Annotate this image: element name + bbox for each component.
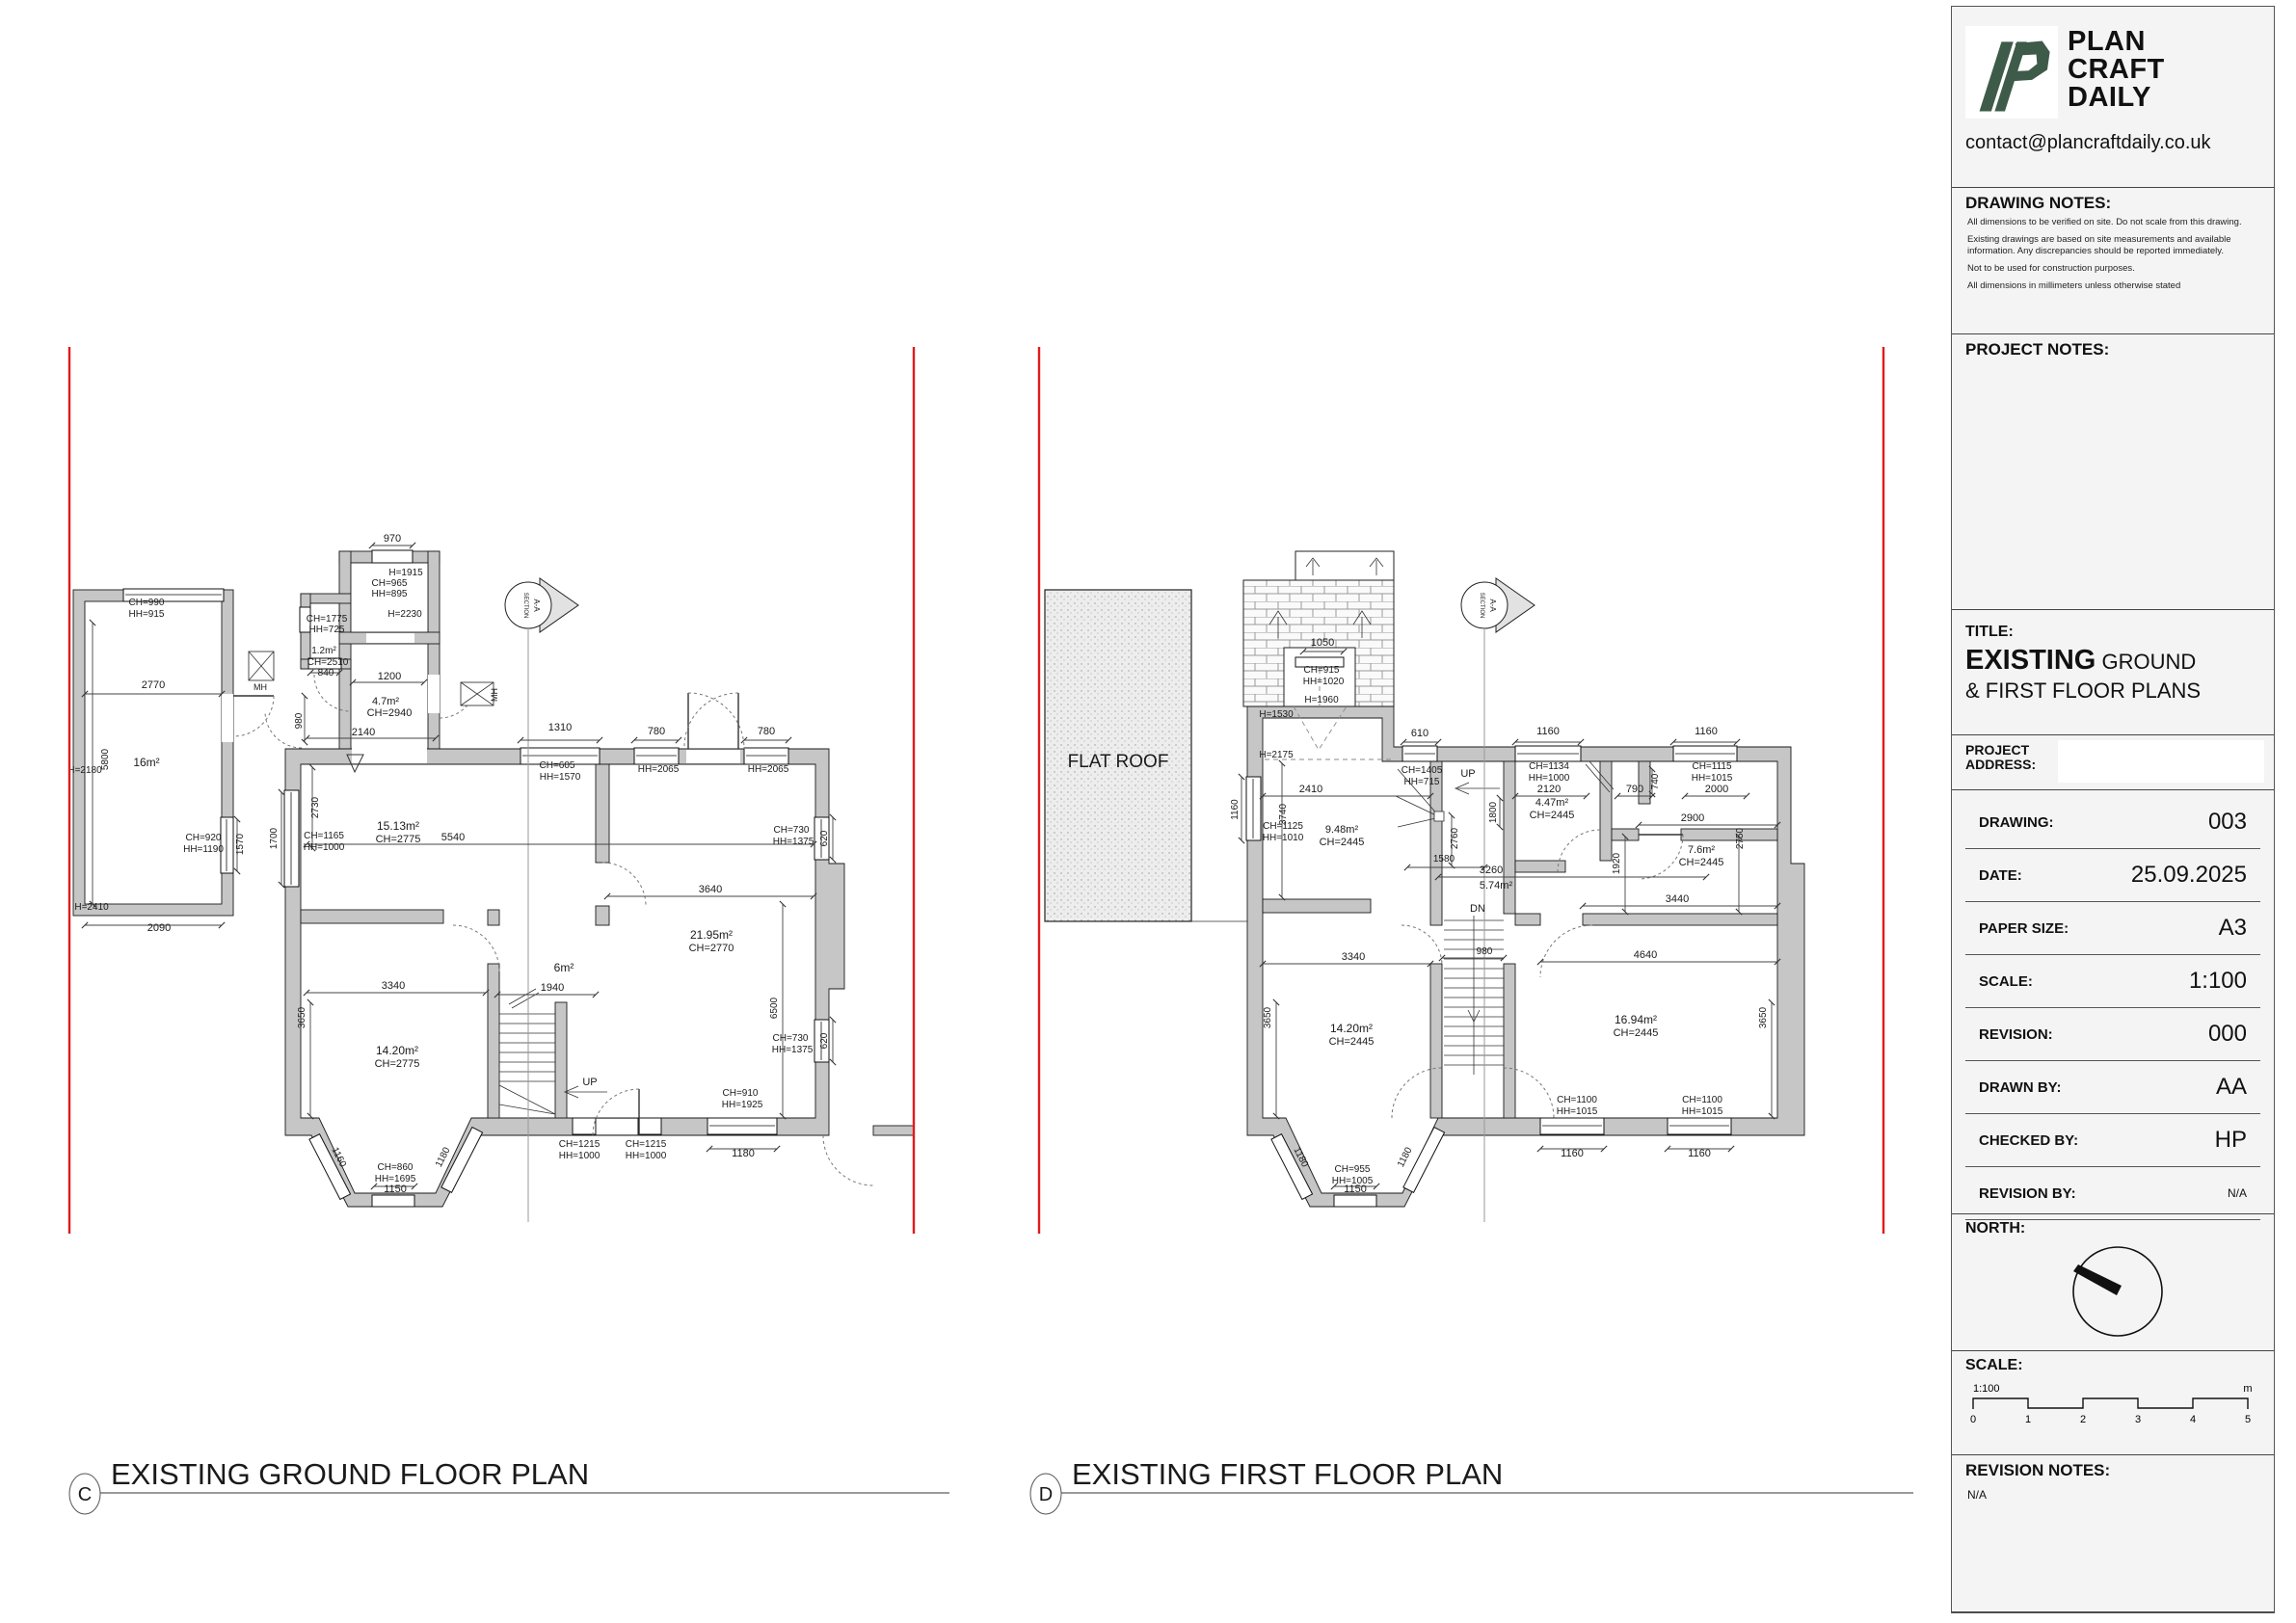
plan-annotation: CH=965 (372, 578, 408, 589)
scale-tick: 0 (1970, 1414, 1976, 1425)
plan-annotation: 2090 (147, 922, 171, 934)
plan-annotation: 1160 (1561, 1148, 1584, 1159)
plan-annotation: CH=730 (773, 1033, 809, 1044)
plan-annotation: 21.95m² (690, 928, 733, 942)
plan-annotation: CH=2775 (376, 834, 421, 845)
plan-annotation: HH=1190 (183, 844, 224, 855)
info-row-label: DATE: (1979, 867, 2022, 884)
plan-annotation: CH=2445 (1614, 1027, 1659, 1039)
plan-annotation: 970 (384, 533, 401, 545)
plan-annotation: CH=860 (378, 1162, 414, 1173)
drawing-note: Existing drawings are based on site meas… (1967, 234, 2260, 257)
plan-annotation: 3340 (1342, 951, 1365, 963)
plan-annotation: 2750 (1735, 827, 1746, 849)
project-address-redacted (2058, 740, 2264, 783)
plan-annotation: 3650 (1263, 1006, 1273, 1028)
info-row-label: CHECKED BY: (1979, 1132, 2078, 1149)
parapet-box (1295, 551, 1394, 580)
title-block-header: PLAN CRAFT DAILY contact@plancraftdaily.… (1952, 7, 2274, 188)
info-row-label: DRAWN BY: (1979, 1079, 2062, 1096)
info-row: DRAWING:003 (1965, 796, 2260, 849)
north-arrow-icon (1952, 1232, 2276, 1345)
drawing-notes-list: All dimensions to be verified on site. D… (1965, 217, 2260, 291)
plan-annotation: 2140 (352, 727, 375, 738)
plan-annotation: HH=1020 (1303, 677, 1345, 687)
plan-annotation: H=1960 (1304, 695, 1339, 705)
plan-annotation: 1800 (1488, 801, 1499, 823)
plan-annotation: 3440 (1666, 893, 1689, 905)
plan-annotation: 5540 (441, 832, 465, 843)
info-row: REVISION:000 (1965, 1008, 2260, 1061)
plan-annotation: 1.2m² (311, 646, 336, 656)
drawing-notes-heading: DRAWING NOTES: (1965, 194, 2260, 213)
plan-annotation: 1570 (235, 833, 246, 855)
plan-annotation: 1160 (1688, 1148, 1711, 1159)
plan-annotation: 15.13m² (377, 819, 419, 833)
plan-annotation: 2000 (1705, 784, 1728, 795)
scale-tick: 1 (2025, 1414, 2031, 1425)
plan-annotation: 16.94m² (1615, 1013, 1657, 1026)
plan-annotation: H=1530 (1259, 709, 1294, 720)
plan-annotation: 4.7m² (372, 696, 399, 707)
plan-annotation: 980 (1477, 946, 1493, 957)
plan-annotation: 620 (819, 1032, 830, 1049)
plan-annotation: UP (1460, 768, 1475, 780)
plan-annotation: CH=1405 (1402, 765, 1443, 776)
plan-annotation: 3260 (1480, 865, 1503, 876)
plan-annotation: A-A (1488, 599, 1497, 612)
plan-annotation: CH=2940 (367, 707, 413, 719)
plan-annotation: 4.47m² (1535, 797, 1569, 809)
plan-annotation: CH=730 (774, 825, 810, 836)
company-logo-icon (1965, 26, 2058, 119)
plan-annotation: A-A (532, 599, 541, 612)
plan-annotation: CH=1100 (1682, 1095, 1722, 1105)
plan-annotation: H=1915 (388, 568, 423, 578)
title-block: PLAN CRAFT DAILY contact@plancraftdaily.… (1951, 6, 2275, 1613)
sheet-title: EXISTING GROUND & FIRST FLOOR PLANS (1965, 643, 2260, 705)
scale-tick: 4 (2190, 1414, 2196, 1425)
info-row-value: HP (2215, 1127, 2247, 1154)
plan-annotation: 4640 (1634, 949, 1657, 961)
plan-annotation: 14.20m² (376, 1044, 418, 1057)
plan-annotation: 1160 (1695, 726, 1718, 737)
plan-annotation: 14.20m² (1330, 1022, 1373, 1035)
plan-annotation: HH=895 (372, 589, 408, 599)
plan-annotation: 9.48m² (1325, 824, 1359, 836)
plan-annotation: 5.74m² (1480, 880, 1513, 891)
info-row-label: REVISION: (1979, 1026, 2053, 1043)
plan-annotation: CH=1125 (1263, 821, 1303, 832)
plan-annotation: CH=2445 (1320, 837, 1365, 848)
plan-annotation: 1580 (1433, 854, 1455, 865)
plan-annotation: CH=2445 (1329, 1036, 1375, 1048)
plan-annotation: 840 (318, 668, 334, 678)
plan-annotation: HH=1000 (1529, 773, 1570, 784)
drawing-notes-section: DRAWING NOTES: All dimensions to be veri… (1952, 188, 2274, 334)
scale-section: SCALE: 1:100 m 012345 (1952, 1351, 2274, 1455)
plan-annotation: HH=1000 (626, 1151, 667, 1161)
plan-annotation: 2900 (1681, 812, 1704, 824)
plan-annotation: 2730 (310, 796, 321, 818)
project-address-section: PROJECT ADDRESS: (1952, 735, 2274, 790)
project-notes-section: PROJECT NOTES: (1952, 334, 2274, 610)
plan-annotation: CH=2770 (689, 943, 734, 954)
plan-ref-letter: D (1039, 1484, 1053, 1505)
plan-annotation: CH=990 (129, 598, 165, 608)
plan-annotation: CH=2445 (1530, 810, 1575, 821)
drawing-note: Not to be used for construction purposes… (1967, 263, 2260, 275)
plan-annotation: HH=1570 (540, 772, 581, 783)
info-row-value: 1:100 (2189, 968, 2247, 995)
scale-bar: 1:100 m 012345 (1965, 1380, 2264, 1430)
plan-annotation: CH=605 (540, 760, 575, 771)
plan-annotation: SECTION (1479, 593, 1484, 619)
plan-annotation: CH=2445 (1679, 857, 1724, 868)
info-row: PAPER SIZE:A3 (1965, 902, 2260, 955)
sheet-title-section: TITLE: EXISTING GROUND & FIRST FLOOR PLA… (1952, 610, 2274, 735)
info-row-value: 25.09.2025 (2131, 862, 2247, 889)
plan-annotation: HH=1375 (772, 1045, 814, 1055)
scale-tick: 3 (2135, 1414, 2141, 1425)
revision-notes-section: REVISION NOTES: N/A (1952, 1455, 2274, 1612)
revision-notes-value: N/A (1967, 1488, 2260, 1502)
plan-annotation: DN (1470, 903, 1485, 915)
company-name: PLAN CRAFT DAILY (2068, 28, 2165, 112)
info-row: CHECKED BY:HP (1965, 1114, 2260, 1167)
plan-annotation: 1940 (541, 982, 564, 994)
plan-annotation: 7.6m² (1688, 844, 1715, 856)
plan-title: EXISTING GROUND FLOOR PLAN (111, 1457, 589, 1491)
plan-annotation: 1310 (548, 722, 572, 733)
plan-annotation: 3340 (382, 980, 405, 992)
plan-annotation: CH=1100 (1557, 1095, 1597, 1105)
plan-annotation: CH=1115 (1692, 761, 1731, 772)
plan-annotation: H=2175 (1259, 750, 1294, 760)
plan-annotation: 3650 (1758, 1006, 1769, 1028)
plan-annotation: 2410 (1299, 784, 1322, 795)
plan-annotation: HH=715 (1404, 777, 1440, 787)
plan-annotation: 610 (1411, 728, 1428, 739)
plan-annotation: CH=2775 (375, 1058, 420, 1070)
info-row-value: AA (2216, 1074, 2247, 1101)
plan-annotation: 3650 (297, 1006, 307, 1028)
plan-annotation: CH=2510 (307, 657, 349, 668)
plan-annotation: 1920 (1612, 852, 1622, 874)
plan-annotation: 1150 (1344, 1184, 1367, 1195)
plan-annotation: H=2180 (67, 765, 102, 776)
plan-annotation: SECTION (522, 593, 528, 619)
plan-annotation: 1200 (378, 671, 401, 682)
plan-annotation: HH=725 (309, 625, 345, 635)
plan-annotation: MH (254, 682, 267, 692)
scale-label: SCALE: (1965, 1357, 2260, 1374)
info-rows: DRAWING:003DATE:25.09.2025PAPER SIZE:A3S… (1952, 790, 2274, 1214)
plan-annotation: HH=1010 (1263, 833, 1304, 843)
ground-floor-plan: CH=990HH=91527705800H=218016m²CH=920HH=1… (67, 533, 914, 1222)
drawing-sheet: { "title_block": { "brand": {"line1":"PL… (0, 0, 2296, 1623)
plan-annotation: HH=1015 (1682, 1106, 1723, 1117)
info-row: DATE:25.09.2025 (1965, 849, 2260, 902)
project-notes-heading: PROJECT NOTES: (1965, 340, 2260, 359)
plan-annotation: CH=1775 (307, 614, 348, 625)
plan-annotation: HH=1925 (722, 1100, 763, 1110)
info-row-label: DRAWING: (1979, 814, 2054, 831)
plan-annotation: CH=1134 (1529, 761, 1569, 772)
plan-annotation: 6m² (554, 961, 574, 974)
plan-annotation: HH=1375 (773, 837, 814, 847)
plan-annotation: CH=955 (1335, 1164, 1371, 1175)
info-row-value: 003 (2208, 809, 2247, 836)
plan-annotation: 1700 (269, 827, 280, 849)
plan-annotation: HH=2065 (638, 764, 680, 775)
plan-annotation: CH=1215 (626, 1139, 667, 1150)
info-row: REVISION BY:N/A (1965, 1167, 2260, 1220)
plan-annotation: 1180 (732, 1148, 755, 1159)
info-row-label: REVISION BY: (1979, 1185, 2076, 1202)
plan-annotation: 16m² (133, 756, 159, 769)
info-row: SCALE:1:100 (1965, 955, 2260, 1008)
svg-text:1:100: 1:100 (1973, 1383, 2000, 1395)
plan-annotation: 1160 (1230, 799, 1241, 820)
info-row-label: PAPER SIZE: (1979, 920, 2069, 937)
revision-notes-heading: REVISION NOTES: (1965, 1461, 2260, 1480)
plan-annotation: 740 (1650, 773, 1661, 789)
plan-annotation: H=2410 (74, 902, 109, 913)
plan-annotation: 6500 (769, 997, 780, 1019)
plan-annotation: 1160 (1536, 726, 1560, 737)
north-section: NORTH: (1952, 1214, 2274, 1351)
svg-text:m: m (2243, 1383, 2252, 1395)
scale-tick: 5 (2245, 1414, 2251, 1425)
plan-annotation: HH=1000 (304, 842, 345, 853)
plan-annotation: CH=915 (1304, 665, 1340, 676)
plan-annotation: 790 (1626, 784, 1643, 795)
plan-annotation: UP (582, 1077, 597, 1088)
plan-annotation: 620 (819, 830, 830, 846)
info-row: DRAWN BY:AA (1965, 1061, 2260, 1114)
drawing-note: All dimensions to be verified on site. D… (1967, 217, 2260, 228)
plan-annotation: CH=1215 (559, 1139, 601, 1150)
contact-email[interactable]: contact@plancraftdaily.co.uk (1965, 132, 2260, 154)
caption-first: D EXISTING FIRST FLOOR PLAN (1030, 1457, 1913, 1514)
plan-ref-letter: C (78, 1484, 92, 1505)
plan-annotation: CH=920 (186, 833, 222, 843)
plan-annotation: HH=1015 (1557, 1106, 1598, 1117)
plan-annotation: HH=1015 (1692, 773, 1733, 784)
plan-annotation: 2120 (1537, 784, 1561, 795)
plan-annotation: 780 (648, 726, 665, 737)
plan-annotation: 1150 (384, 1184, 407, 1195)
drawing-canvas: CH=990HH=91527705800H=218016m²CH=920HH=1… (0, 0, 1952, 1623)
plan-annotation: HH=915 (129, 609, 165, 620)
plan-title: EXISTING FIRST FLOOR PLAN (1072, 1457, 1503, 1491)
plan-annotation: 3640 (699, 884, 722, 895)
plan-annotation: 2770 (142, 679, 165, 691)
info-row-label: SCALE: (1979, 973, 2033, 990)
title-label: TITLE: (1965, 624, 2260, 641)
plan-annotation: CH=910 (723, 1088, 759, 1099)
plan-annotation: CH=1165 (304, 831, 344, 841)
plan-annotation: FLAT ROOF (1068, 752, 1169, 772)
plan-annotation: 1050 (1311, 637, 1334, 649)
caption-ground: C EXISTING GROUND FLOOR PLAN (69, 1457, 949, 1514)
first-floor-plan: FLAT ROOF1050CH=915HH=1020H=1960H=1530H=… (1045, 551, 1804, 1222)
info-row-value: N/A (2228, 1186, 2247, 1200)
info-row-value: A3 (2219, 915, 2247, 942)
scale-tick: 2 (2080, 1414, 2086, 1425)
plan-annotation: H=2230 (387, 609, 422, 620)
plan-annotation: 780 (758, 726, 775, 737)
plan-annotation: HH=2065 (748, 764, 789, 775)
plan-annotation: MH (490, 688, 499, 702)
plan-annotation: 2760 (1450, 827, 1460, 849)
plan-annotation: 980 (294, 712, 305, 729)
drawing-note: All dimensions in millimeters unless oth… (1967, 280, 2260, 292)
info-row-value: 000 (2208, 1021, 2247, 1048)
plan-annotation: HH=1000 (559, 1151, 601, 1161)
